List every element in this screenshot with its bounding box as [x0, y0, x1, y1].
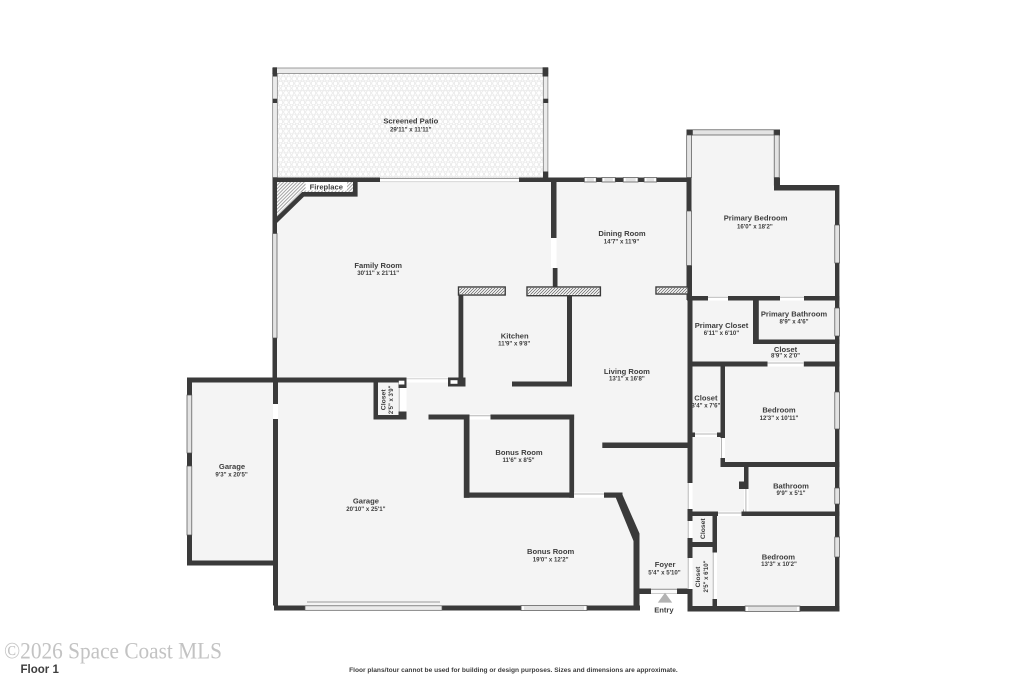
svg-text:20'10" x 25'1": 20'10" x 25'1" — [346, 506, 385, 513]
svg-text:Garage: Garage — [353, 496, 379, 505]
svg-text:2'5" x 3'9": 2'5" x 3'9" — [389, 385, 395, 414]
svg-text:16'0" x 18'2": 16'0" x 18'2" — [737, 224, 773, 231]
svg-text:Foyer: Foyer — [655, 560, 676, 569]
svg-text:Closet: Closet — [694, 394, 718, 403]
svg-text:Bedroom: Bedroom — [762, 552, 796, 561]
svg-text:Bonus Room: Bonus Room — [527, 547, 574, 556]
svg-text:29'11" x 11'11": 29'11" x 11'11" — [390, 126, 432, 133]
svg-text:13'3" x 10'2": 13'3" x 10'2" — [761, 561, 797, 568]
svg-text:Floor plans/tour cannot be use: Floor plans/tour cannot be used for buil… — [349, 667, 678, 674]
svg-text:Primary Bathroom: Primary Bathroom — [761, 310, 828, 319]
svg-text:12'3" x 10'11": 12'3" x 10'11" — [760, 415, 799, 422]
svg-text:Screened Patio: Screened Patio — [383, 116, 438, 125]
svg-text:Bonus Room: Bonus Room — [495, 448, 542, 457]
svg-text:©2026 Space Coast MLS: ©2026 Space Coast MLS — [4, 639, 222, 665]
svg-text:Entry: Entry — [654, 606, 674, 615]
svg-text:Fireplace: Fireplace — [310, 182, 343, 191]
svg-text:Family Room: Family Room — [354, 261, 402, 270]
svg-text:11'6" x 8'5": 11'6" x 8'5" — [502, 457, 534, 464]
svg-text:Bathroom: Bathroom — [773, 481, 809, 490]
svg-text:3'4" x 7'6": 3'4" x 7'6" — [691, 402, 720, 409]
svg-text:Garage: Garage — [219, 462, 245, 471]
svg-text:Primary Bedroom: Primary Bedroom — [724, 214, 788, 223]
svg-text:6'11" x 6'10": 6'11" x 6'10" — [704, 330, 740, 337]
svg-text:Living Room: Living Room — [604, 367, 650, 376]
svg-text:9'9" x 5'1": 9'9" x 5'1" — [776, 490, 805, 497]
svg-text:13'1" x 16'8": 13'1" x 16'8" — [609, 376, 645, 383]
svg-text:8'9" x 4'6": 8'9" x 4'6" — [779, 319, 808, 326]
svg-text:Kitchen: Kitchen — [501, 332, 529, 341]
svg-text:Dining Room: Dining Room — [598, 229, 645, 238]
svg-text:5'4" x 5'10": 5'4" x 5'10" — [648, 570, 681, 577]
svg-text:14'7" x 11'9": 14'7" x 11'9" — [604, 239, 640, 246]
svg-text:11'9" x 9'8": 11'9" x 9'8" — [498, 341, 530, 348]
svg-text:Primary Closet: Primary Closet — [695, 321, 749, 330]
svg-text:2'5" x 6'10": 2'5" x 6'10" — [704, 560, 710, 592]
svg-text:Floor 1: Floor 1 — [21, 664, 60, 676]
svg-text:19'0" x 12'2": 19'0" x 12'2" — [533, 557, 569, 564]
svg-text:Closet: Closet — [381, 389, 388, 411]
svg-text:8'9" x 2'0": 8'9" x 2'0" — [771, 353, 800, 360]
svg-text:Bedroom: Bedroom — [762, 406, 796, 415]
svg-text:30'11" x 21'11": 30'11" x 21'11" — [357, 270, 399, 277]
svg-text:Closet: Closet — [695, 566, 702, 588]
svg-text:Closet: Closet — [700, 518, 707, 540]
svg-text:9'3" x 20'5": 9'3" x 20'5" — [215, 472, 248, 479]
